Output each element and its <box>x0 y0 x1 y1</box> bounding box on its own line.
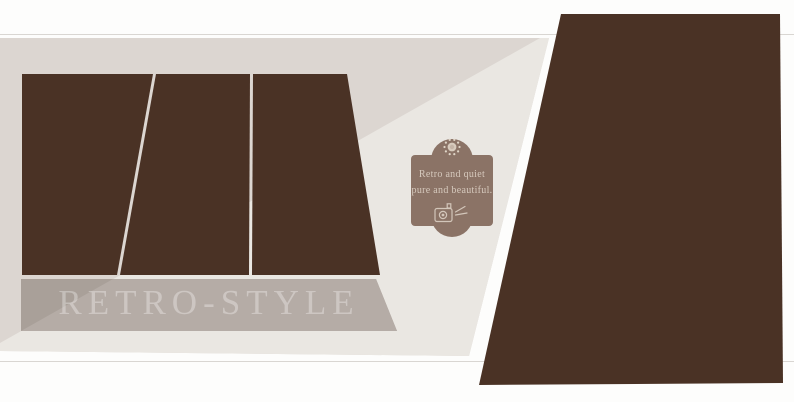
retro-badge: Retro and quiet pure and beautiful. <box>411 139 493 237</box>
badge-caption: Retro and quiet pure and beautiful. <box>411 167 493 199</box>
badge-caption-line1: Retro and quiet <box>411 167 493 183</box>
badge-caption-line2: pure and beautiful. <box>411 183 493 199</box>
sun-icon <box>442 137 462 157</box>
tv-icon <box>433 202 473 226</box>
retro-style-title: RETRO-STYLE <box>21 285 397 331</box>
retro-template-artboard: RETRO-STYLE Retro and quiet pure and bea… <box>0 0 794 402</box>
